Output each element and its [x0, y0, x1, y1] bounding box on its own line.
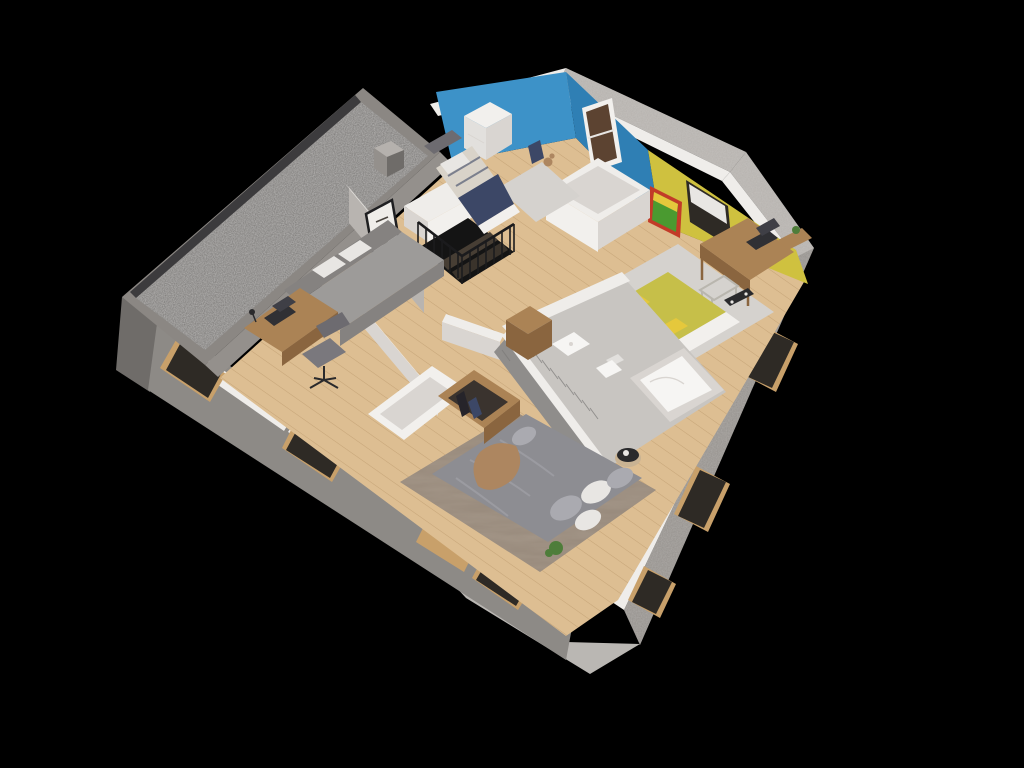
shelf-plant: [792, 226, 800, 234]
skateboard-wheel-1: [730, 300, 733, 303]
floor-plant-leaf: [545, 549, 553, 557]
coffee-cup: [623, 450, 629, 456]
basin-drain: [569, 342, 573, 346]
teddy-bear: [544, 158, 553, 167]
floorplan-stage: [0, 0, 1024, 768]
floorplan-render: [0, 0, 1024, 768]
skateboard-wheel-2: [744, 292, 747, 295]
teddy-bear-head: [549, 153, 554, 158]
